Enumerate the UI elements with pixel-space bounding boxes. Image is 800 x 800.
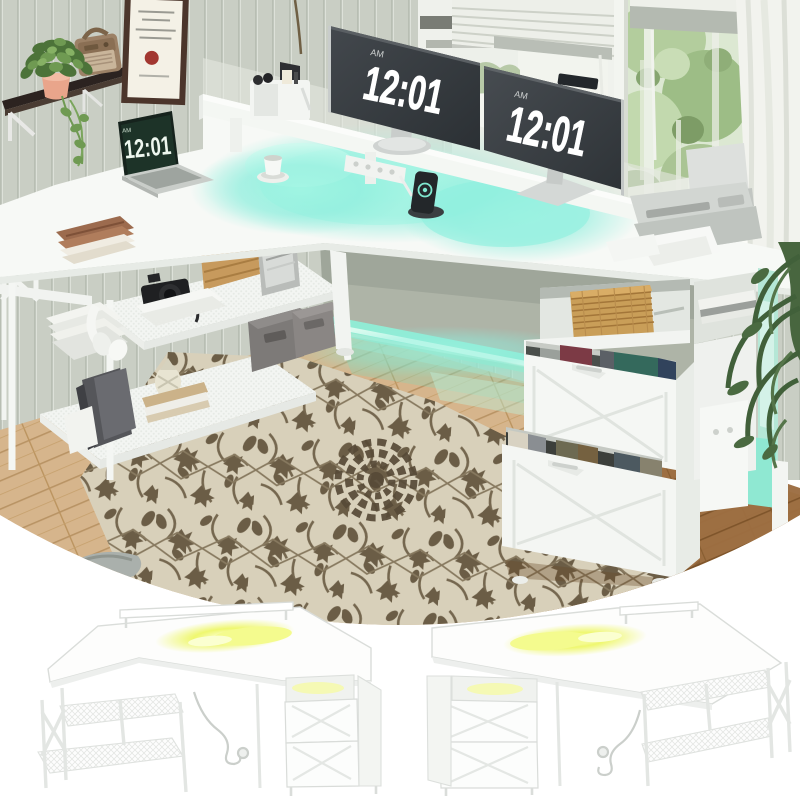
- svg-text:12:01: 12:01: [123, 130, 173, 165]
- svg-text:AM: AM: [122, 128, 132, 135]
